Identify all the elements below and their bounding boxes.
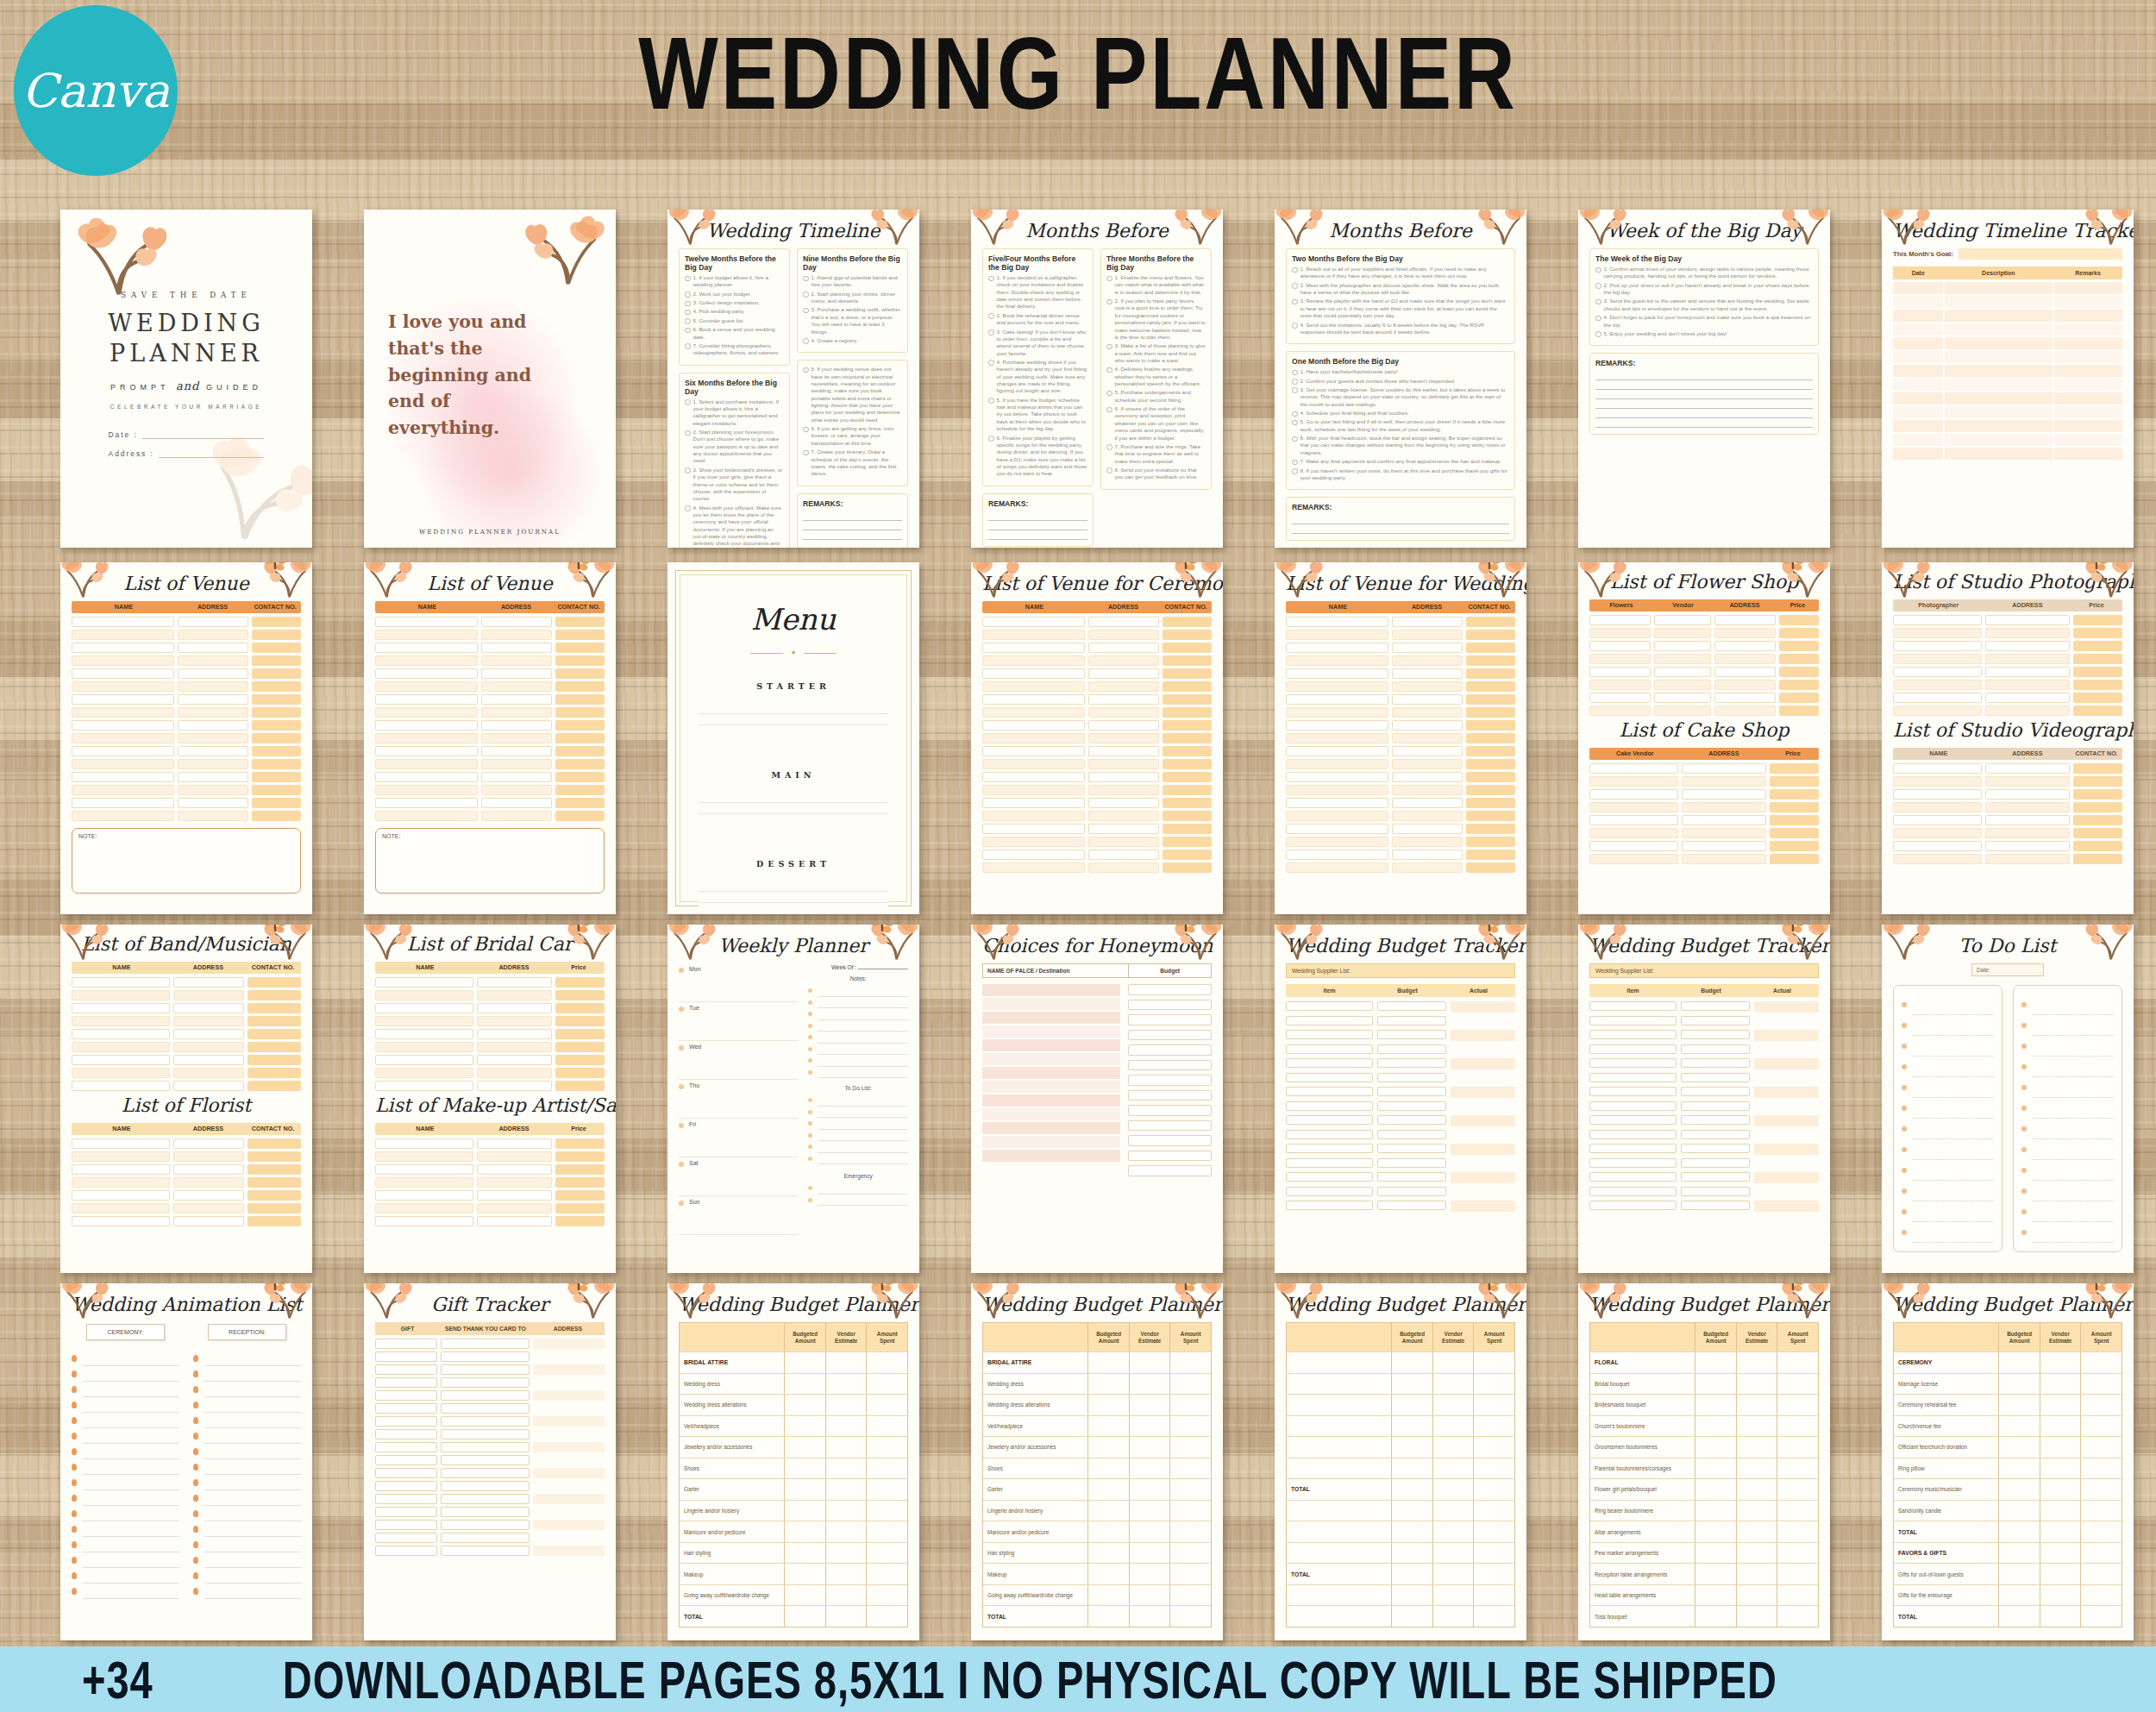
column-header: Price [1769,750,1817,757]
page-heading: List of Band/Musician [72,935,301,954]
budget-row [1589,1044,1819,1056]
checklist-item: 8. Send out your invitations so that you… [1106,467,1206,481]
entry-line [83,1397,179,1413]
page-heading: List of Cake Shop [1589,721,1819,740]
table-row [1589,628,1819,638]
budget-cell [1128,1120,1212,1132]
table-row [1589,693,1819,703]
planner-page-animation-list: Wedding Animation ListCEREMONY:RECEPTION… [60,1283,312,1640]
table-row [72,798,301,808]
table-row [1286,643,1515,653]
todo-line [1913,1057,1994,1077]
checklist-item: 2. Pick up your dress or suit if you hav… [1595,282,1813,297]
budget-line-row [1287,1351,1514,1373]
planner-page-cover: SAVE THE DATE WEDDINGPLANNER PROMPT and … [60,210,312,548]
budget-line-row: Ceremony rehearsal fee [1894,1394,2122,1415]
todo-line [1913,1222,1994,1243]
table-header-row: Budgeted AmountVendor EstimateAmount Spe… [1894,1323,2122,1351]
checkbox-icon [1595,316,1601,322]
line-item-label: Lingerie and/or hosiery [983,1501,1087,1521]
menu-section-label: STARTER [756,681,830,691]
page-heading: List of Flower Shop [1589,573,1819,592]
budget-row [1286,1144,1515,1155]
todo-line [2033,1015,2114,1036]
flower-ornament-icon [179,427,312,548]
entry-line [204,1444,301,1459]
line-item-label: Manicure and/or pedicure [983,1521,1087,1542]
budget-row [1589,1158,1819,1170]
checklist-item: 4. Definitely finalize any readings, whe… [1106,366,1206,387]
line-item-label [1287,1543,1391,1564]
line-item-label: Gifts for out-of-town guests [1894,1564,1998,1584]
budget-line-row [1287,1458,1514,1479]
line-item-label: Lingerie and/or hosiery [680,1501,784,1521]
planner-page-months-before-2: Months BeforeTwo Months Before the Big D… [1275,210,1526,548]
budget-line-row [1287,1373,1514,1395]
checkbox-icon [1595,267,1601,273]
cover-subtitle: PROMPT and GUIDED [72,379,301,392]
table-row [1286,837,1515,847]
table-header-row: NAMEADDRESSPrice [375,1123,605,1135]
todo-line [1913,1036,1994,1057]
budget-cell [1128,1014,1212,1025]
column-header: NAME [984,604,1085,611]
table-row [375,1177,605,1188]
table-row [72,1164,301,1175]
tracker-row [1893,351,2122,363]
column-header: Flowers [1591,602,1651,609]
budget-line-row: FAVORS & GIFTS [1894,1542,2122,1564]
checklist-item: 2. Work out your budget. [685,291,784,298]
line-item-label: Ceremony music/musician [1894,1479,1998,1500]
checklist-item: 6. If you are getting any limos, mini bu… [803,425,902,447]
column-header: Actual [1745,988,1819,994]
checkbox-icon [1106,367,1112,373]
checklist-item: 3. Shop your bridesmaid's dresses, or if… [685,467,784,503]
checklist-item: 2. Confirm your guests and contact those… [1292,378,1509,385]
entry-line [204,1366,301,1382]
checkbox-icon [685,310,691,316]
note-line [818,1141,908,1153]
line-item-label: Wedding dress [680,1374,784,1395]
table-header-row: Budgeted AmountVendor EstimateAmount Spe… [1287,1323,1514,1351]
column-header: NAME [73,604,174,611]
checklist-item: 4. Don't forget to pack for your honeymo… [1595,314,1813,329]
table-header-row: NAMEADDRESSPrice [375,962,605,974]
checkbox-icon [803,427,809,433]
column-header: NAME [1288,604,1388,611]
line-item-label: Marriage license [1894,1374,1998,1395]
butterfly-icon [566,562,592,574]
planner-page-venue-reception: List of Venue for Wedding ReceptionNAMEA… [1275,562,1526,914]
table-row [375,1016,605,1026]
budget-line-row: Reception table arrangements [1590,1563,1818,1584]
table-row [982,681,1212,692]
gift-row [375,1429,605,1439]
day-block: Sat [679,1157,798,1196]
budget-planner-table: Budgeted AmountVendor EstimateAmount Spe… [1286,1322,1515,1627]
todo-line [1913,994,1994,1015]
table-row [72,811,301,821]
planner-page-budget-planner-4: Wedding Budget PlannerBudgeted AmountVen… [1578,1283,1830,1640]
notes-column: Week Of : Notes: To Do List: Emergency [808,963,908,1235]
line-item-label: Reception table arrangements [1590,1564,1695,1584]
column-header: CONTACT NO. [1465,604,1514,611]
column-header: Budget [1373,988,1442,994]
gift-row [375,1442,605,1452]
table-row [982,720,1212,731]
column-header: ADDRESS [477,1126,551,1132]
checklist-item: 6. Book a venue and your wedding date. [685,326,784,341]
checklist-item: 3. Send the guest list to the caterer an… [1595,298,1813,312]
line-item-label: Pew marker arrangements [1590,1543,1695,1564]
table-row [1893,854,2122,864]
page-heading: Weekly Planner [679,937,908,956]
column-header: Budgeted Amount [1087,1323,1129,1351]
remarks-label: REMARKS: [988,499,1087,508]
entry-line [204,1428,301,1444]
column-header: Amount Spent [1169,1323,1211,1351]
table-row [982,759,1212,769]
budget-line-row: Going away outfit/wardrobe change [680,1584,907,1606]
ruled-lines [1595,371,1813,428]
gift-row [375,1546,605,1556]
todo-line [1913,1181,1994,1201]
table-header-row: Cake VendorADDRESSPrice [1589,748,1819,760]
column-header: NAME [377,604,478,611]
budget-row [1589,1172,1819,1183]
todo-line [2033,1057,2114,1077]
planner-page-budget-planner-1: Wedding Budget PlannerBudgeted AmountVen… [667,1283,919,1640]
line-item-label: BRIDAL ATTIRE [983,1352,1087,1373]
column-header: CONTACT NO. [247,1126,299,1132]
cover-title: WEDDINGPLANNER [72,308,301,368]
table-row [375,1042,605,1052]
budget-line-row: Flower girl petals/bouquet [1590,1478,1818,1500]
line-item-label: Wedding dress [983,1374,1087,1395]
table-row [375,990,605,1000]
table-header-row: GIFTSEND THANK YOU CARD TOADDRESS [375,1322,605,1335]
budget-row [1589,1001,1819,1013]
table-header-row: NAMEADDRESSCONTACT NO. [1893,748,2122,760]
budget-line-row: Groom's boutonniere [1590,1415,1818,1437]
budget-cell [1128,1044,1212,1056]
table-row [72,1042,301,1052]
animation-column: RECEPTION: [193,1322,301,1599]
page-heading: Week of the Big Day [1589,222,1819,241]
ruled-lines [699,792,888,835]
tracker-row [1893,365,2122,377]
page-heading: Gift Tracker [375,1295,605,1314]
line-item-label: Wedding dress alterations [680,1395,784,1415]
line-item-label: BRIDAL ATTIRE [680,1352,784,1373]
checkbox-icon [1106,344,1112,350]
column-header: Cake Vendor [1591,750,1679,757]
checklist-section: One Month Before the Big Day1. Have your… [1286,351,1515,490]
note-line [818,1020,908,1032]
entry-line [204,1552,301,1568]
checkbox-icon [803,367,809,373]
table-row [982,811,1212,821]
table-row [1893,802,2122,812]
checkbox-icon [1106,299,1112,305]
column-header: NAME [377,964,473,971]
note-line [818,997,908,1009]
column-header: Price [1778,602,1817,609]
table-header-row: ItemBudgetActual [1286,984,1515,997]
table-row [375,1203,605,1213]
page-heading: Wedding Budget Planner [679,1295,908,1314]
checkbox-icon [685,301,691,307]
line-item-label: Hair styling [680,1543,784,1564]
checkbox-icon [803,276,809,282]
table-row [982,694,1212,705]
planner-page-weekly-planner: Weekly Planner MonTueWedThuFriSatSun Wee… [667,925,919,1273]
budget-row [1589,1030,1819,1041]
budget-line-row: Pew marker arrangements [1590,1542,1818,1564]
table-row [375,798,605,808]
line-item-label: Ring pillow [1894,1458,1998,1479]
destination-row [982,984,1120,996]
table-row [375,1029,605,1039]
column-header: Vendor Estimate [2040,1323,2081,1351]
note-line [818,1067,908,1079]
destination-row [982,1081,1120,1093]
page-heading: Months Before [982,222,1212,241]
planner-page-budget-planner-2: Wedding Budget PlannerBudgeted AmountVen… [971,1283,1223,1640]
line-item-label: Toss bouquet [1590,1606,1695,1627]
budget-cell [1128,1030,1212,1041]
budget-cell [1128,984,1212,995]
budget-line-row: Jewelery and/or accessories [983,1436,1211,1458]
budget-line-row: Going away outfit/wardrobe change [983,1584,1211,1606]
checklist-item: 4. Purchase wedding shoes if you haven't… [988,359,1087,395]
line-item-label: Garter [983,1479,1087,1500]
page-heading: List of Studio Videographer [1893,721,2122,740]
entry-line [204,1475,301,1490]
column-header: NAME [377,1126,473,1132]
table-row [1286,707,1515,718]
todo-label: To Do List: [808,1085,908,1091]
day-block: Mon [679,963,798,1002]
budget-row [1286,1087,1515,1098]
line-item-label: Jewelery and/or accessories [680,1437,784,1458]
tracker-row [1893,434,2122,446]
budget-line-row: Makeup [983,1563,1211,1584]
checklist-item: 3. Cake tasting! If you don't know who t… [988,329,1087,357]
checklist-item: 7. Make any final payments and confirm a… [1292,458,1509,465]
remarks-label: REMARKS: [803,499,902,508]
table-row [72,977,301,988]
column-header: ADDRESS [481,604,551,611]
line-item-label: TOTAL [1894,1606,1998,1627]
column-header: NAME OF PALCE / Destination [983,964,1128,977]
table-row [72,1190,301,1201]
table-header-row: NAMEADDRESSCONTACT NO. [72,962,301,974]
checkbox-icon [1106,467,1112,473]
table-row [1286,824,1515,834]
page-heading: Wedding Budget Planner [982,1295,1212,1314]
planner-page-photo-video: List of Studio PhotographerPhotographerA… [1882,562,2134,914]
budget-line-row: Lingerie and/or hosiery [983,1500,1211,1521]
line-item-label: Shoes [680,1458,784,1479]
line-item-label: Officiant fee/church donation [1894,1437,1998,1458]
table-row [982,862,1212,873]
line-item-label: Head table arrangements [1590,1585,1695,1606]
budget-row [1286,1016,1515,1027]
column-label: RECEPTION: [208,1324,286,1340]
menu-section: STARTER [685,676,902,746]
table-row [1286,668,1515,679]
budget-line-row: Veil/headpiece [983,1415,1211,1437]
page-heading: List of Venue [72,574,301,593]
budget-row [1286,1201,1515,1212]
table-row [1286,850,1515,860]
entry-line [204,1459,301,1475]
checklist-item: 2. Start planning your drinks, dinner me… [803,291,902,305]
table-row [1589,654,1819,664]
todo-panel [2013,985,2122,1252]
tracker-row [1893,406,2122,418]
checklist-item: 3. Get your marriage license. Some coupl… [1292,386,1509,408]
checklist-column: Three Months Before the Big Day1. Finali… [1100,248,1212,548]
column-header: Amount Spent [1473,1323,1514,1351]
todo-line [2033,1119,2114,1139]
budget-line-row [1287,1542,1514,1564]
table-row [1589,841,1819,851]
gift-row [375,1390,605,1401]
budget-line-row: BRIDAL ATTIRE [680,1351,907,1373]
flower-ornament-icon [67,216,169,297]
butterfly-icon [566,1283,592,1295]
column-header: Actual [1442,988,1515,994]
checklist-section: 5. If your wedding venue does not have i… [797,360,908,486]
tracker-row [1893,420,2122,432]
table-row [72,1016,301,1026]
table-header-row: ItemBudgetActual [1589,984,1819,997]
column-header: GIFT [377,1326,438,1332]
line-item-label: Gifts for the entourage [1894,1585,1998,1606]
entry-line [83,1459,179,1475]
table-header-row: Budgeted AmountVendor EstimateAmount Spe… [680,1323,907,1351]
table-row [982,798,1212,808]
line-item-label: TOTAL [1287,1479,1391,1500]
table-header-row: PhotographerADDRESSPrice [1893,599,2122,611]
page-title: WEDDING PLANNER [0,14,2156,133]
destination-row [982,1108,1120,1120]
table-row [982,824,1212,834]
table-header-row: DateDescriptionRemarks [1893,267,2122,279]
budget-planner-table: Budgeted AmountVendor EstimateAmount Spe… [1893,1322,2122,1627]
budget-line-row: Hair styling [983,1542,1211,1564]
table-row [1589,776,1819,787]
column-header: ADDRESS [1088,604,1158,611]
budget-row [1589,1016,1819,1027]
column-header: Amount Spent [2080,1323,2122,1351]
emergency-label: Emergency [808,1173,908,1179]
line-item-label: Ring bearer boutonniere [1590,1501,1695,1521]
budget-row [1589,1201,1819,1212]
checklist-item: 1. Reach out to all of your suppliers an… [1292,266,1509,280]
note-line [818,985,908,997]
menu-title: Menu [685,602,902,637]
table-row [375,1003,605,1013]
line-item-label: Jewelery and/or accessories [983,1437,1087,1458]
table-header-row: NAME OF PALCE / DestinationBudget [982,963,1212,978]
table-row [72,772,301,782]
planner-page-budget-planner-5: Wedding Budget PlannerBudgeted AmountVen… [1882,1283,2134,1640]
budget-line-row: Shoes [680,1458,907,1479]
checkbox-icon [1292,299,1298,305]
table-row [1286,772,1515,782]
budget-line-row: Wedding dress alterations [680,1394,907,1415]
checklist-item: 6. With your final headcount, stock the … [1292,435,1509,456]
checkbox-icon [1292,460,1298,466]
checkbox-icon [1292,323,1298,329]
table-header-row: Budgeted AmountVendor EstimateAmount Spe… [1590,1323,1818,1351]
destination-row [982,1150,1120,1162]
column-header: ADDRESS [1683,750,1766,757]
line-item-label: Shoes [983,1458,1087,1479]
checklist-item: 2. Book the rehearsal dinner venue and a… [988,312,1087,327]
checkbox-icon [685,399,691,405]
section-heading: One Month Before the Big Day [1292,357,1509,366]
table-row [1893,705,2122,716]
table-row [1893,841,2122,851]
section-heading: Two Months Before the Big Day [1292,254,1509,263]
table-row [375,720,605,731]
budget-row [1589,1115,1819,1126]
budget-line-row: Ring bearer boutonniere [1590,1500,1818,1521]
column-header: ADDRESS [1986,602,2070,609]
table-row [375,1164,605,1175]
note-line [818,1130,908,1142]
budget-cell [1128,1165,1212,1176]
checklist-item: 5. Enjoy your wedding and don't stress y… [1595,330,1813,337]
column-header: ADDRESS [533,1326,603,1332]
page-heading: Months Before [1286,222,1515,241]
tracker-row [1893,337,2122,349]
gift-row [375,1481,605,1491]
gift-row [375,1468,605,1478]
gift-row [375,1533,605,1543]
page-heading: List of Venue [375,574,605,593]
entry-line [204,1583,301,1599]
budget-line-row: Bridal bouquet [1590,1373,1818,1395]
table-row [72,694,301,705]
table-row [982,655,1212,666]
planner-page-bridalcar-makeup: List of Bridal CarNAMEADDRESSPriceList o… [364,925,616,1273]
table-row [72,707,301,718]
checklist-item: 6. Finalize your playlist by getting spe… [988,435,1087,478]
entry-line [204,1490,301,1506]
page-heading: Wedding Budget Tracker [1589,937,1819,956]
budget-line-row: Veil/headpiece [680,1415,907,1437]
column-header: Item [1286,988,1373,994]
table-row [375,1055,605,1065]
todo-line [1913,1098,1994,1119]
column-header: Date [1893,270,1944,276]
table-row [1893,654,2122,664]
section-heading: Five/Four Months Before the Big Day [988,254,1087,272]
budget-row [1286,1115,1515,1126]
budget-line-row: TOTAL [1287,1563,1514,1584]
planner-page-budget-tracker-2: Wedding Budget TrackerWedding Supplier L… [1578,925,1830,1273]
table-row [375,1068,605,1078]
note-box: NOTE: [72,828,301,894]
line-item-label: Going away outfit/wardrobe change [680,1585,784,1606]
column-header: ADDRESS [477,964,551,971]
